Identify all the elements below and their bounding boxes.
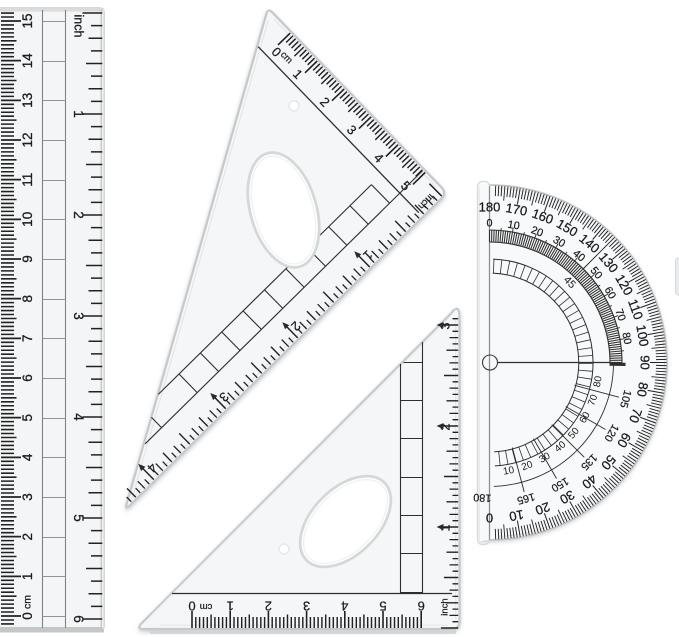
svg-text:4: 4 [341, 599, 348, 614]
svg-text:10: 10 [20, 212, 35, 227]
svg-text:cm: cm [200, 601, 213, 612]
svg-text:cm: cm [22, 595, 34, 609]
svg-text:1: 1 [71, 110, 86, 118]
svg-text:12: 12 [20, 132, 35, 147]
svg-text:0: 0 [188, 599, 195, 614]
svg-text:2: 2 [20, 533, 35, 541]
svg-text:7: 7 [20, 335, 35, 343]
svg-text:5: 5 [379, 599, 386, 614]
svg-text:9: 9 [20, 255, 35, 263]
svg-text:2: 2 [71, 211, 86, 219]
svg-text:0: 0 [486, 511, 493, 526]
svg-text:6: 6 [71, 615, 86, 623]
svg-text:180: 180 [473, 491, 492, 504]
svg-text:13: 13 [20, 93, 35, 108]
svg-text:1: 1 [227, 599, 234, 614]
svg-text:4: 4 [20, 453, 35, 461]
svg-text:80: 80 [634, 381, 651, 398]
svg-text:14: 14 [20, 53, 35, 69]
svg-text:3: 3 [71, 312, 86, 320]
svg-text:3: 3 [303, 599, 310, 614]
svg-text:5: 5 [71, 514, 86, 522]
svg-text:5: 5 [20, 414, 35, 422]
svg-text:180: 180 [479, 200, 501, 215]
svg-text:6: 6 [418, 599, 425, 614]
svg-text:8: 8 [20, 295, 35, 303]
svg-text:15: 15 [20, 13, 35, 28]
svg-text:10: 10 [507, 219, 521, 233]
svg-text:10: 10 [508, 507, 525, 524]
svg-text:0: 0 [20, 612, 35, 620]
svg-text:3: 3 [20, 493, 35, 501]
svg-text:0: 0 [486, 218, 492, 230]
svg-text:4: 4 [71, 413, 86, 421]
svg-text:6: 6 [20, 374, 35, 382]
svg-text:80: 80 [619, 331, 633, 345]
svg-text:2: 2 [265, 599, 272, 614]
svg-text:90: 90 [638, 355, 653, 369]
svg-text:1: 1 [20, 573, 35, 581]
svg-text:11: 11 [20, 173, 35, 187]
svg-text:inch: inch [72, 15, 86, 38]
svg-text:inch: inch [440, 598, 451, 615]
